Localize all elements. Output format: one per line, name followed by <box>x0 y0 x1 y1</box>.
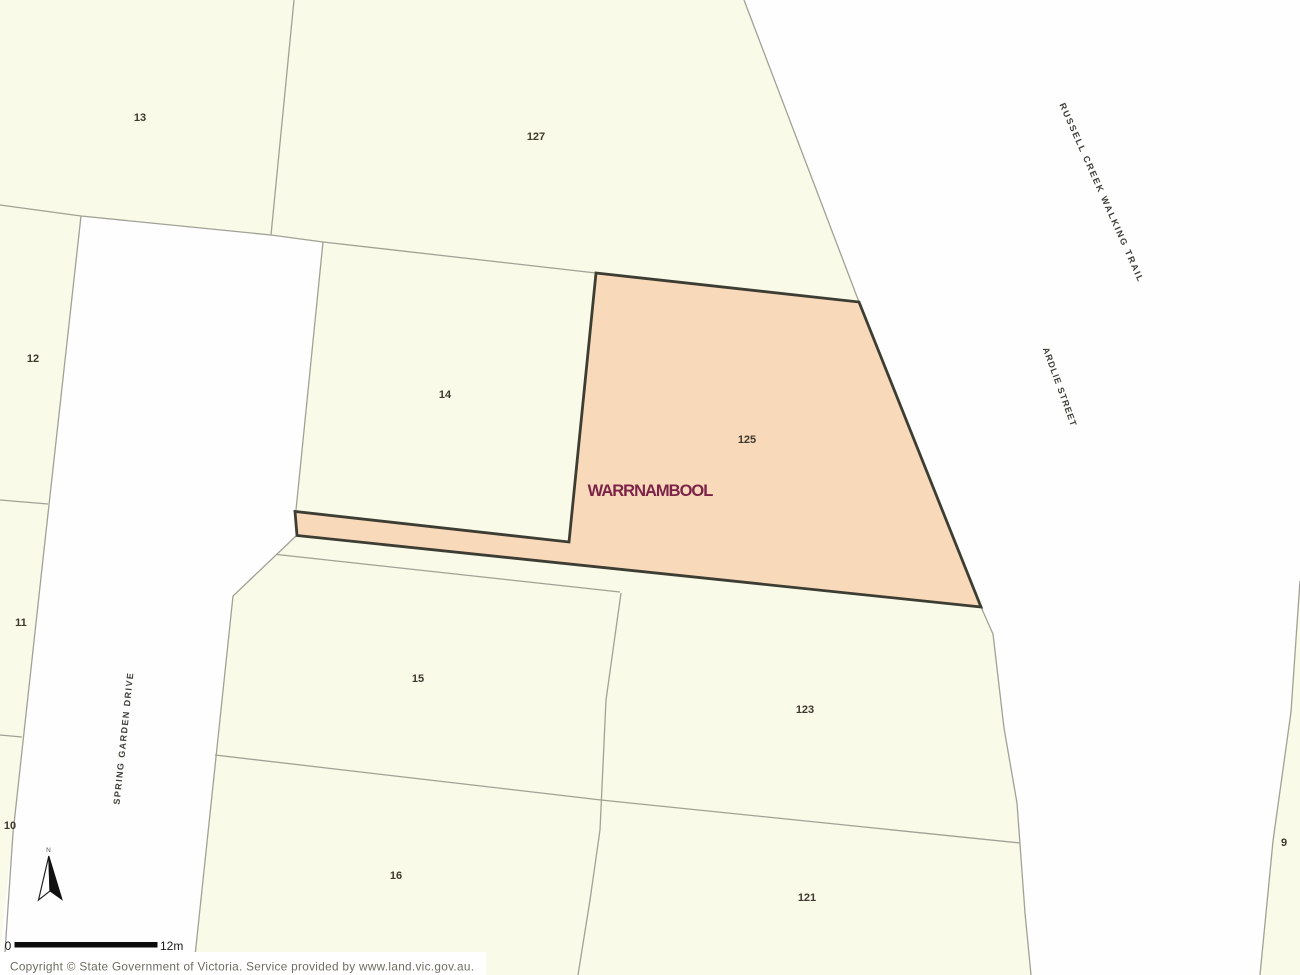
svg-text:10: 10 <box>4 820 16 832</box>
svg-text:127: 127 <box>527 131 545 143</box>
svg-text:14: 14 <box>439 389 452 401</box>
svg-text:15: 15 <box>412 673 424 685</box>
svg-text:125: 125 <box>738 434 756 446</box>
svg-text:12: 12 <box>27 353 39 365</box>
svg-text:WARRNAMBOOL: WARRNAMBOOL <box>588 482 714 500</box>
svg-text:0: 0 <box>5 939 12 953</box>
svg-text:9: 9 <box>1281 837 1287 849</box>
svg-text:Copyright © State Government o: Copyright © State Government of Victoria… <box>10 960 474 974</box>
svg-text:16: 16 <box>390 870 402 882</box>
svg-text:13: 13 <box>134 112 146 124</box>
svg-text:12m: 12m <box>160 939 183 953</box>
svg-text:11: 11 <box>15 617 27 629</box>
svg-text:N: N <box>46 847 51 854</box>
svg-text:121: 121 <box>798 892 816 904</box>
svg-text:123: 123 <box>796 704 814 716</box>
